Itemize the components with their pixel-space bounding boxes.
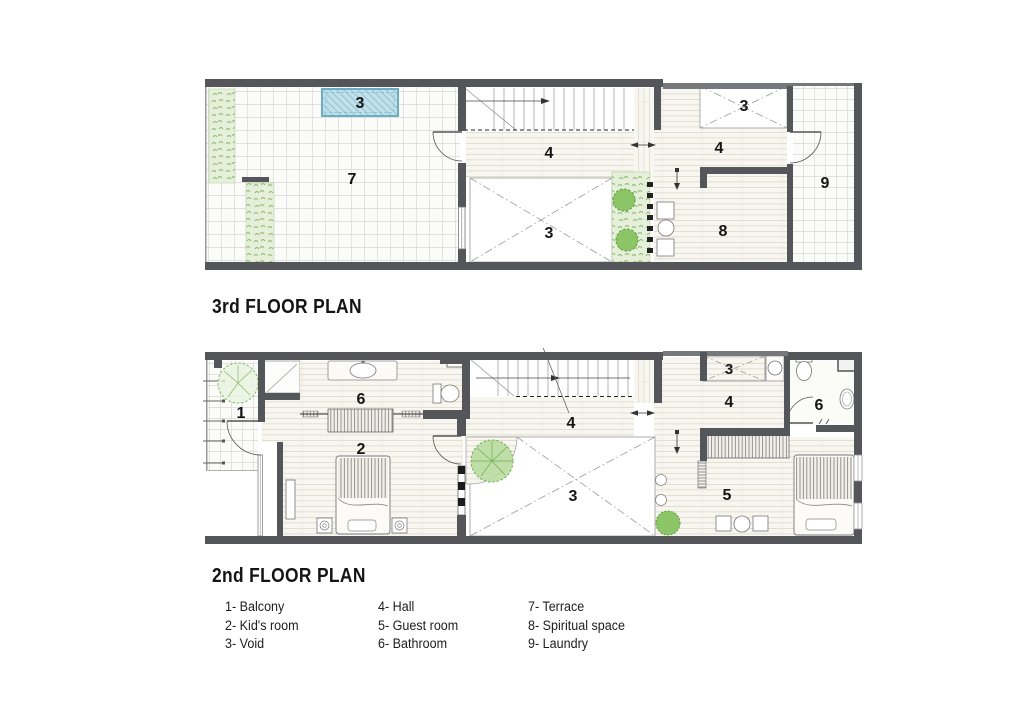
legend-item-kids-room: 2- Kid's room (225, 617, 299, 636)
laundry-floor (793, 86, 854, 262)
legend-item-spiritual-space: 8- Spiritual space (528, 617, 625, 636)
legend-item-laundry: 9- Laundry (528, 635, 625, 654)
legend-item-void: 3- Void (225, 635, 299, 654)
void-top-right-2nd (703, 356, 765, 381)
legend-item-bathroom: 6- Bathroom (378, 635, 458, 654)
legend-item-hall: 4- Hall (378, 598, 458, 617)
label-spiritual-space: 8 (719, 223, 728, 240)
label-bathroom-left: 6 (357, 391, 366, 408)
label-kids-room: 2 (357, 441, 366, 458)
legend-item-guest-room: 5- Guest room (378, 617, 458, 636)
legend-column-3: 7- Terrace 8- Spiritual space 9- Laundry (528, 598, 625, 654)
label-terrace: 7 (348, 171, 357, 188)
legend-column-2: 4- Hall 5- Guest room 6- Bathroom (378, 598, 458, 654)
label-void-mid: 3 (545, 225, 554, 242)
staircase (464, 88, 634, 130)
third-floor-plan-title: 3rd FLOOR PLAN (212, 296, 362, 319)
third-floor-plan-drawing: 3 7 4 3 4 3 8 9 (203, 76, 865, 276)
planting-strip (612, 172, 653, 262)
label-hall-mid: 4 (545, 145, 554, 162)
label-void-skylight: 3 (356, 95, 365, 112)
label-balcony: 1 (237, 405, 246, 422)
window-terrace-wall (459, 207, 466, 249)
void-middle (470, 178, 612, 262)
room-legend: 1- Balcony 2- Kid's room 3- Void 4- Hall… (0, 598, 1024, 668)
label-hall-right: 4 (715, 140, 724, 157)
second-floor-plan-drawing: 1 6 2 4 3 3 4 5 6 (203, 348, 865, 548)
spiritual-space-furniture (657, 202, 674, 256)
label-hall-right-2nd: 4 (725, 394, 734, 411)
label-void-mid-2nd: 3 (569, 488, 578, 505)
label-void-right: 3 (740, 98, 749, 115)
label-guest-room: 5 (723, 487, 732, 504)
label-hall-mid-2nd: 4 (567, 415, 576, 432)
label-void-right-2nd: 3 (725, 361, 733, 378)
floor-plan-sheet: 3 7 4 3 4 3 8 9 3rd FLOOR PLAN (0, 0, 1024, 724)
label-bathroom-right: 6 (815, 397, 824, 414)
label-laundry: 9 (821, 175, 830, 192)
second-floor-plan-title: 2nd FLOOR PLAN (212, 565, 366, 588)
legend-item-balcony: 1- Balcony (225, 598, 299, 617)
window-kids-room-wall (458, 466, 465, 515)
legend-item-terrace: 7- Terrace (528, 598, 625, 617)
legend-column-1: 1- Balcony 2- Kid's room 3- Void (225, 598, 299, 654)
